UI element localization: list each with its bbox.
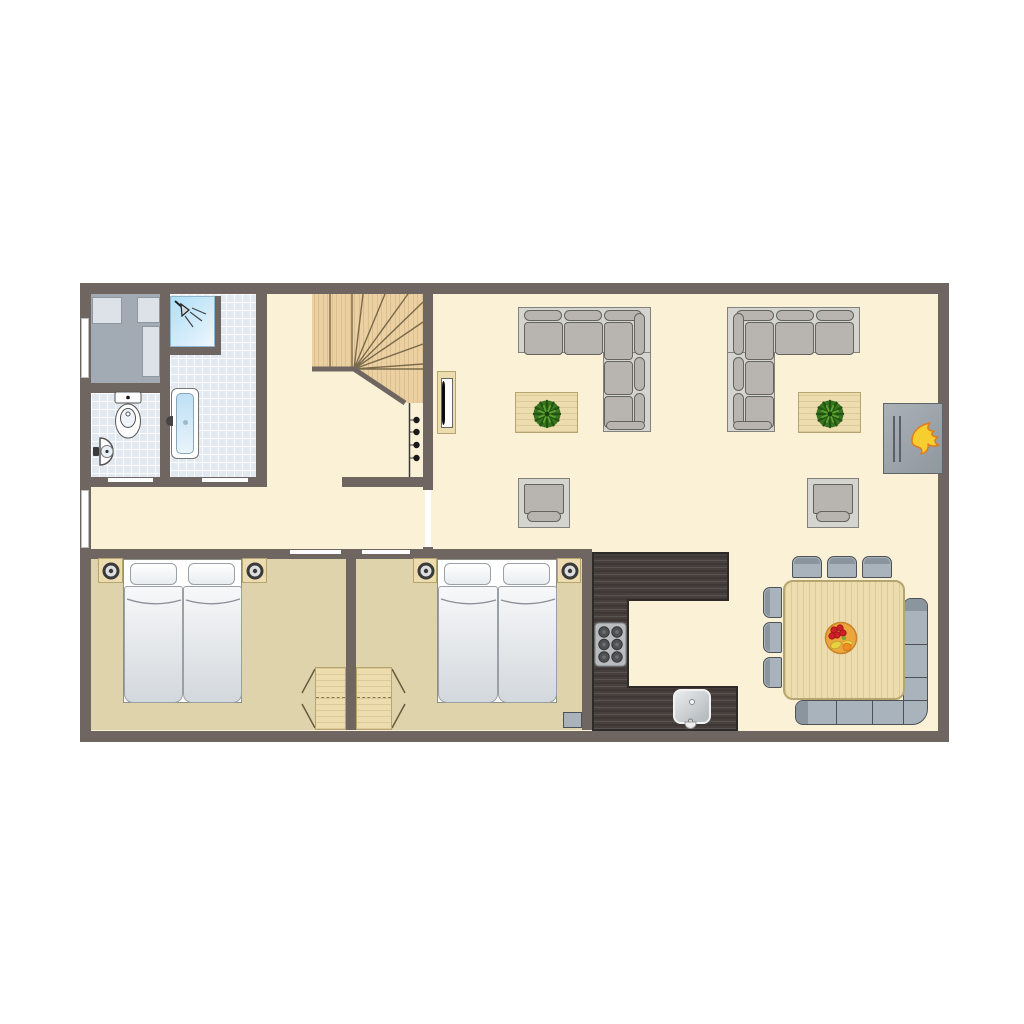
- twin-beds: [123, 559, 242, 703]
- chair-back: [765, 659, 770, 686]
- fold-line: [316, 697, 345, 698]
- coffee-table: [515, 392, 578, 433]
- nightstand: [98, 558, 123, 583]
- bathtub: [171, 388, 199, 459]
- sofa-seat: [604, 361, 633, 395]
- pillow: [503, 563, 550, 585]
- coffee-table: [798, 392, 861, 433]
- sofa-armrest: [634, 313, 645, 355]
- dining-chair: [792, 556, 822, 578]
- sofa-seat: [815, 322, 854, 355]
- plant-icon: [529, 396, 565, 432]
- lamp-icon: [414, 559, 438, 583]
- sofa-armrest: [733, 313, 744, 355]
- sofa-back-cushion: [776, 310, 814, 321]
- door-opening-bedroom-1: [290, 550, 341, 554]
- fold-down-table: [315, 667, 346, 730]
- window: [81, 318, 89, 378]
- corner-bench: [903, 598, 928, 701]
- dining-chair: [763, 587, 782, 618]
- floor-plan: [80, 283, 949, 742]
- storage-unit: [142, 326, 160, 377]
- tv-screen: [442, 381, 445, 425]
- sofa-armrest: [606, 421, 645, 430]
- wall-hall-living: [423, 294, 433, 490]
- dining-chair: [862, 556, 892, 578]
- stool: [563, 712, 582, 728]
- bathtub-faucet: [166, 416, 173, 426]
- wall-bathroom-divider: [160, 294, 170, 487]
- door-opening-bedroom-2: [362, 550, 410, 554]
- dining-table: [783, 580, 905, 700]
- armchair-front-cushion: [816, 511, 850, 522]
- bench-divider: [872, 701, 873, 724]
- lamp-icon: [243, 559, 267, 583]
- blanket-fold: [438, 596, 558, 612]
- sofa-seat: [745, 361, 774, 395]
- shower-partition: [170, 347, 221, 355]
- door-opening-bathroom: [202, 478, 248, 482]
- chair-back: [829, 558, 855, 564]
- pillow: [130, 563, 177, 585]
- sofa-back-cushion: [564, 310, 602, 321]
- blanket-fold: [124, 596, 243, 612]
- door-opening-living: [425, 490, 431, 547]
- fireplace-line: [899, 416, 901, 462]
- sofa-back-cushion: [816, 310, 854, 321]
- wall-bathroom-right: [256, 294, 267, 487]
- sofa-seat: [775, 322, 814, 355]
- armchair: [518, 478, 570, 528]
- utility-room-floor: [91, 294, 160, 383]
- fold-arrow-icon: [392, 667, 408, 730]
- chair-back: [794, 558, 820, 564]
- nightstand: [413, 558, 437, 583]
- armchair-seat: [524, 484, 564, 514]
- sofa-seat: [745, 322, 774, 360]
- sofa-back-cushion: [733, 357, 744, 391]
- lamp-icon: [558, 559, 582, 583]
- fold-down-table: [356, 667, 392, 730]
- sofa-seat: [524, 322, 563, 355]
- wall-bedroom-divider: [346, 553, 356, 730]
- bench-divider: [836, 701, 837, 724]
- corner-bench: [795, 700, 904, 725]
- chair-back: [765, 589, 770, 616]
- armchair: [807, 478, 859, 528]
- door-opening-toilet: [108, 478, 153, 482]
- window: [81, 490, 89, 548]
- bench-divider: [904, 644, 927, 645]
- pillow: [444, 563, 491, 585]
- chair-back: [864, 558, 890, 564]
- dining-chair: [763, 622, 782, 653]
- twin-beds: [437, 559, 557, 703]
- flame-icon: [904, 419, 940, 461]
- nightstand: [242, 558, 267, 583]
- fruit-bowl-icon: [823, 620, 859, 656]
- kitchen-sink: [672, 687, 712, 729]
- sofa-back-cushion: [634, 357, 645, 391]
- nightstand: [557, 558, 581, 583]
- armchair-front-cushion: [527, 511, 561, 522]
- hand-basin: [92, 435, 118, 469]
- winder-staircase: [312, 294, 423, 406]
- plant-icon: [812, 396, 848, 432]
- corner-bench-cap: [904, 599, 927, 611]
- sofa-armrest: [733, 421, 772, 430]
- pillow: [188, 563, 235, 585]
- stove: [594, 622, 627, 667]
- storage-unit: [137, 297, 160, 323]
- page: [0, 0, 1024, 1024]
- sofa-back-cushion: [524, 310, 562, 321]
- shower-head-icon: [171, 297, 211, 333]
- fireplace: [883, 403, 943, 474]
- dining-chair: [827, 556, 857, 578]
- tv-cabinet: [437, 371, 456, 434]
- wall-hall-stub: [342, 477, 433, 487]
- sofa-seat: [564, 322, 603, 355]
- fold-line: [357, 697, 391, 698]
- dining-chair: [763, 657, 782, 688]
- sofa-seat: [604, 322, 633, 360]
- wall-bedroom2-kitchen: [582, 549, 592, 730]
- fold-arrow-icon: [299, 667, 315, 730]
- lamp-icon: [99, 559, 123, 583]
- bathtub-drain: [183, 420, 188, 425]
- storage-unit: [92, 297, 122, 324]
- bench-divider: [904, 677, 927, 678]
- fireplace-line: [893, 416, 895, 462]
- corner-bench-cap: [796, 701, 808, 724]
- chair-back: [765, 624, 770, 651]
- armchair-seat: [813, 484, 853, 514]
